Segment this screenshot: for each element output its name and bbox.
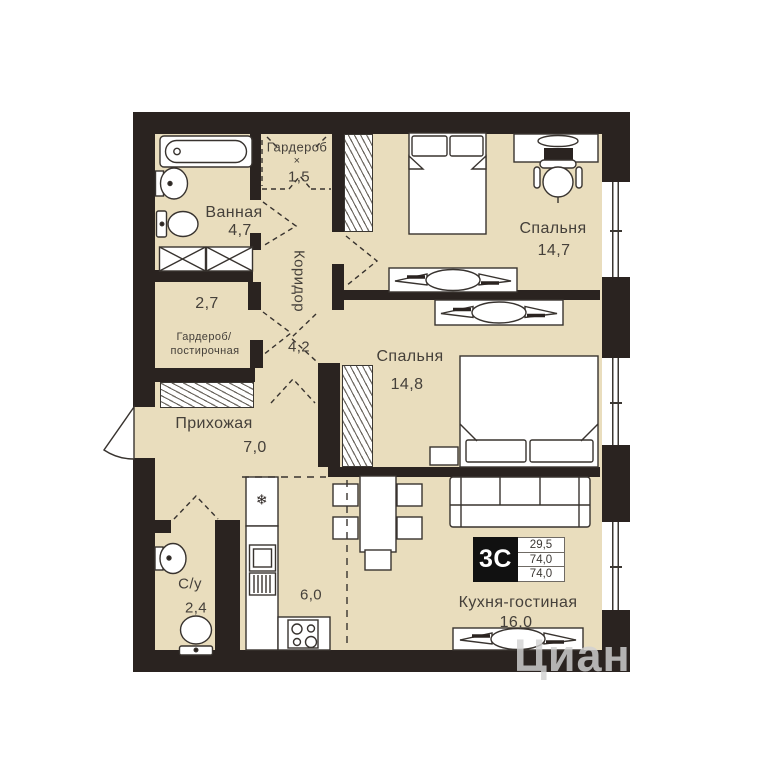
- label-wc-area: 2,4: [185, 600, 207, 617]
- door-swings: [174, 137, 377, 519]
- bathtub: [160, 136, 252, 167]
- label-hallway-area: 7,0: [243, 439, 266, 457]
- furniture-layer: [0, 0, 768, 768]
- area-value-2: 74,0: [518, 552, 565, 568]
- label-laundry-name-1: Гардероб/: [176, 331, 231, 343]
- bed-bedroom-top: [409, 133, 486, 234]
- wc-toilet: [180, 616, 213, 655]
- dresser-bedroom-mid: [435, 300, 563, 325]
- office-chair: [534, 160, 582, 203]
- label-bedroom-top-area: 14,7: [538, 242, 571, 260]
- label-wardrobe-times: ×: [294, 155, 301, 167]
- label-corridor-area: 4,2: [288, 339, 310, 356]
- label-bathroom-name: Ванная: [205, 204, 262, 222]
- wc-sink: [155, 544, 186, 574]
- bed-bedroom-mid: [430, 356, 598, 467]
- label-kitchen-living-name: Кухня-гостиная: [459, 594, 578, 612]
- label-wardrobe-area: 1,5: [288, 169, 310, 186]
- sofa: [450, 477, 590, 527]
- label-bedroom-mid-name: Спальня: [376, 348, 443, 366]
- label-laundry-area: 2,7: [195, 295, 218, 313]
- washing-machines: [160, 247, 253, 271]
- apartment-areas-table: 29,5 74,0 74,0: [518, 537, 565, 582]
- label-bedroom-top-name: Спальня: [519, 220, 586, 238]
- apartment-type-label: 3С: [473, 537, 518, 582]
- entrance-door-leaf: [104, 407, 134, 459]
- apartment-info-badge: 3С 29,5 74,0 74,0: [473, 537, 565, 582]
- bathroom-toilet: [157, 211, 199, 237]
- fridge-snowflake-icon: ❄: [256, 492, 268, 509]
- label-bedroom-mid-area: 14,8: [391, 376, 424, 394]
- floor-plan: Гардероб × 1,5 Ванная 4,7 Спальня 14,7 2…: [0, 0, 768, 768]
- label-hallway-name: Прихожая: [175, 415, 252, 433]
- watermark-logo: Циан: [514, 630, 631, 682]
- area-value-3: 74,0: [518, 566, 565, 582]
- label-kitchen-zone-area: 6,0: [300, 587, 322, 604]
- label-wc-name: С/у: [178, 576, 202, 593]
- label-laundry-name-2: постирочная: [170, 345, 239, 357]
- dresser-bedroom-top: [389, 268, 517, 292]
- area-value-1: 29,5: [518, 537, 565, 553]
- bathroom-sink: [156, 168, 188, 199]
- desk: [514, 134, 598, 162]
- label-corridor-name: Коридор: [291, 250, 308, 312]
- stove: [288, 620, 318, 648]
- label-bathroom-area: 4,7: [228, 222, 251, 240]
- label-wardrobe-name: Гардероб: [267, 140, 327, 155]
